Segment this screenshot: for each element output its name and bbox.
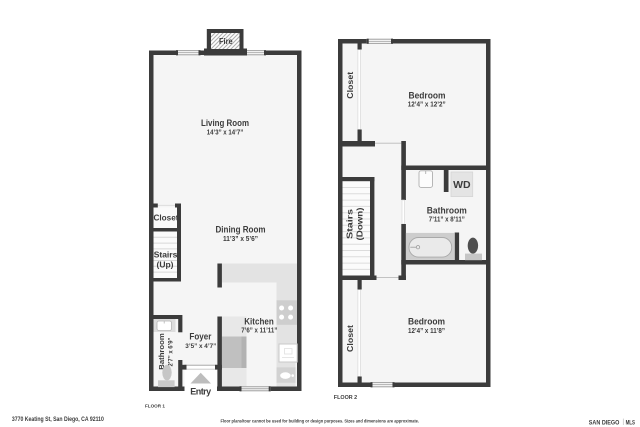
svg-text:Entry: Entry — [190, 387, 211, 397]
svg-text:12’4” x 12’2”: 12’4” x 12’2” — [408, 102, 446, 109]
svg-text:Bedroom: Bedroom — [408, 317, 445, 328]
svg-text:Dining Room: Dining Room — [216, 224, 266, 235]
svg-text:7’11” x 8’11”: 7’11” x 8’11” — [429, 216, 465, 223]
svg-text:SAN DIEGO: SAN DIEGO — [589, 419, 620, 426]
svg-text:Floor plans/tour cannot be use: Floor plans/tour cannot be used for buil… — [221, 418, 420, 423]
svg-text:14’3” x 14’7”: 14’3” x 14’7” — [207, 130, 244, 137]
svg-text:3’5” x 4’7”: 3’5” x 4’7” — [185, 343, 216, 350]
svg-text:Bathroom: Bathroom — [427, 205, 467, 216]
svg-text:(Up): (Up) — [157, 260, 174, 270]
svg-text:Living Room: Living Room — [201, 118, 249, 129]
svg-text:3770 Keating St, San Diego, CA: 3770 Keating St, San Diego, CA 92110 — [12, 416, 104, 423]
svg-text:FLOOR 1: FLOOR 1 — [145, 403, 165, 408]
svg-text:Bedroom: Bedroom — [409, 90, 446, 101]
svg-text:Stairs: Stairs — [154, 250, 178, 260]
svg-text:Stairs: Stairs — [346, 208, 355, 239]
svg-text:FLOOR 2: FLOOR 2 — [334, 395, 357, 401]
svg-text:Closet: Closet — [346, 325, 355, 352]
svg-text:11’3” x 5’6”: 11’3” x 5’6” — [223, 236, 258, 243]
svg-text:Fire: Fire — [219, 37, 233, 46]
svg-text:Foyer: Foyer — [189, 332, 211, 342]
svg-text:Kitchen: Kitchen — [244, 316, 274, 327]
svg-text:Closet: Closet — [154, 212, 179, 222]
svg-text:(Down): (Down) — [355, 207, 364, 240]
svg-text:WD: WD — [453, 179, 471, 191]
svg-text:Closet: Closet — [346, 71, 355, 98]
svg-text:7’6” x 11’11”: 7’6” x 11’11” — [241, 328, 277, 335]
svg-text:2’7” x 6’9”: 2’7” x 6’9” — [169, 338, 175, 367]
svg-text:Bathroom: Bathroom — [157, 333, 166, 370]
svg-text:12’4” x 11’8”: 12’4” x 11’8” — [408, 328, 445, 335]
svg-text:MLS: MLS — [626, 419, 635, 426]
